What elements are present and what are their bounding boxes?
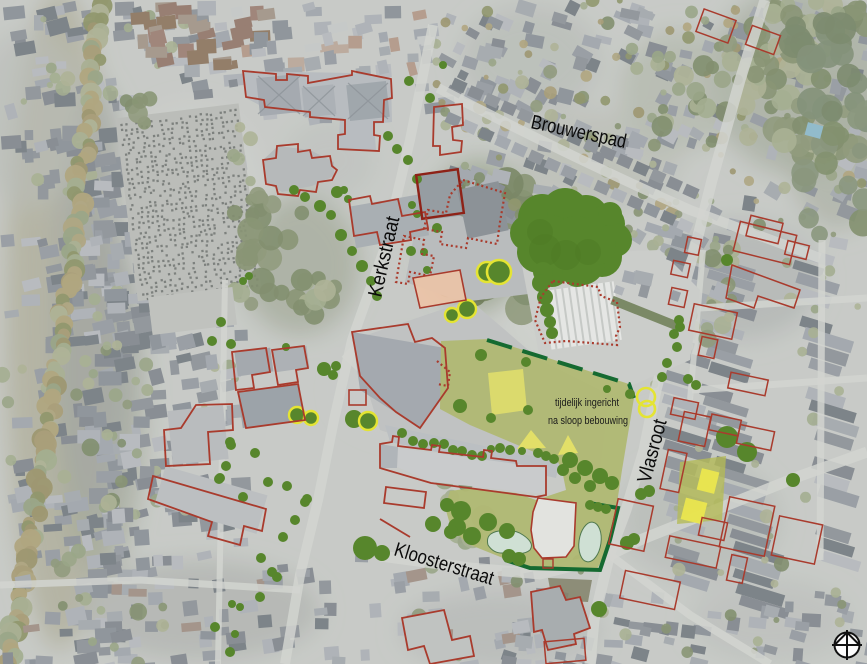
svg-text:tijdelijk ingericht: tijdelijk ingericht: [555, 397, 619, 409]
svg-text:na sloop bebouwing: na sloop bebouwing: [548, 415, 628, 427]
